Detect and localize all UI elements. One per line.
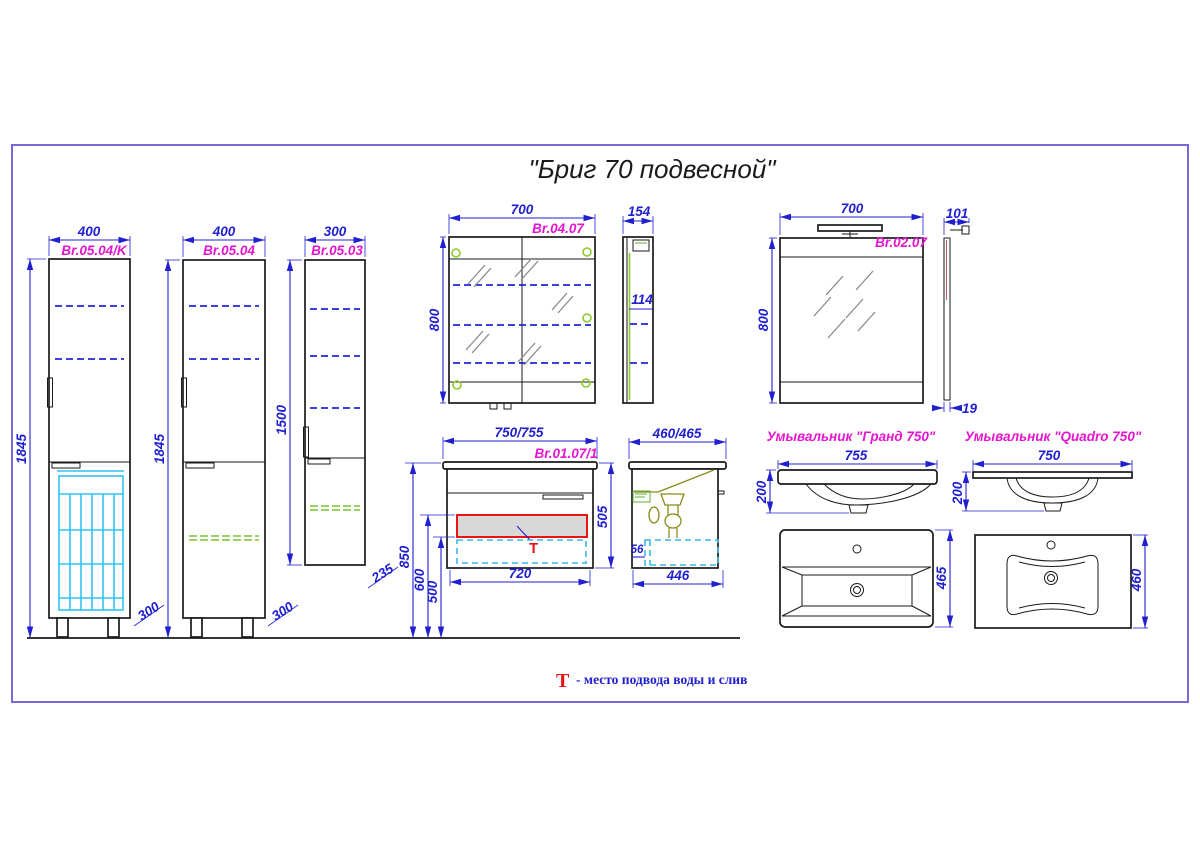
vanity-front: Т 750/755 Br.01.07/1 505 720 850 600 500: [397, 425, 614, 638]
depth-dim: 235: [368, 561, 396, 587]
cabinet-leg: [57, 618, 68, 637]
thickness-dim: 19: [962, 401, 978, 416]
height-dim: 200: [950, 481, 965, 505]
legend-text: - место подвода воды и слив: [576, 672, 747, 687]
technical-drawing: "Бриг 70 подвесной" 400 Br.05.04/K: [0, 0, 1200, 848]
internal-drawer-highlight: [457, 515, 587, 537]
depth-dim: 465: [934, 566, 949, 590]
product-code: Br.05.03: [311, 243, 363, 258]
legend-symbol: Т: [556, 670, 570, 692]
mount-height-dim: 850: [397, 545, 412, 568]
product-code: Br.01.07/1: [534, 446, 597, 461]
width-dim: 750/755: [495, 425, 544, 440]
depth-dim: 300: [269, 599, 296, 624]
sink-name: Умывальник "Quadro 750": [965, 429, 1142, 444]
sink-name: Умывальник "Гранд 750": [767, 429, 936, 444]
width-dim: 750: [1038, 448, 1061, 463]
water-supply-symbol: Т: [529, 540, 538, 557]
drawing-title: "Бриг 70 подвесной": [528, 154, 777, 184]
product-code: Br.05.04/K: [61, 243, 128, 258]
case-depth-dim: 446: [666, 568, 690, 583]
depth-dim: 300: [135, 599, 162, 624]
mirror-cabinet-front: 700 Br.04.07 800: [427, 202, 595, 409]
height-dim: 1845: [14, 433, 29, 464]
height-dim: 800: [427, 308, 442, 331]
depth-dim: 460/465: [652, 426, 702, 441]
cabinet-leg: [108, 618, 119, 637]
height-dim: 200: [754, 480, 769, 504]
tall-cabinet-with-basket: 400 Br.05.04/K 1845 300: [14, 224, 164, 638]
lamp: [818, 225, 882, 231]
height-dim: 505: [595, 505, 610, 528]
lamp-depth-dim: 101: [946, 206, 969, 221]
width-dim: 400: [212, 224, 236, 239]
cabinet-leg: [191, 618, 202, 637]
legend: Т - место подвода воды и слив: [556, 670, 747, 692]
width-dim: 700: [511, 202, 534, 217]
height-dim: 800: [756, 308, 771, 331]
height-dim: 1500: [274, 404, 289, 435]
vanity-side: 56 460/465 446: [629, 426, 726, 588]
product-code: Br.02.07: [875, 235, 928, 250]
product-code: Br.05.04: [203, 243, 255, 258]
product-code: Br.04.07: [532, 221, 585, 236]
offset-dim: 56: [631, 544, 644, 556]
height-dim: 1845: [152, 433, 167, 464]
hanging-column-cabinet: 300 Br.05.03 1500 235: [274, 224, 398, 588]
width-dim: 700: [841, 201, 864, 216]
cabinet-leg: [242, 618, 253, 637]
width-dim: 755: [845, 448, 868, 463]
sink-top: [443, 462, 597, 469]
shelf-depth-dim: 114: [631, 292, 653, 307]
width-dim: 300: [324, 224, 347, 239]
drawing-page: "Бриг 70 подвесной" 400 Br.05.04/K: [0, 0, 1200, 848]
case-width-dim: 720: [509, 566, 532, 581]
depth-dim: 154: [628, 204, 651, 219]
mirror-front: Br.02.07 700 800: [756, 201, 928, 403]
supply-height-dim: 500: [425, 580, 440, 603]
mirror-side: 101 19: [935, 206, 978, 416]
sink-quadro: Умывальник "Quadro 750" 750 200 460: [950, 429, 1148, 628]
depth-dim: 460: [1129, 568, 1144, 592]
width-dim: 400: [77, 224, 101, 239]
sink-grand: Умывальник "Гранд 750" 755 200 465: [754, 429, 953, 627]
mirror-cabinet-side: 154 114: [623, 204, 654, 403]
